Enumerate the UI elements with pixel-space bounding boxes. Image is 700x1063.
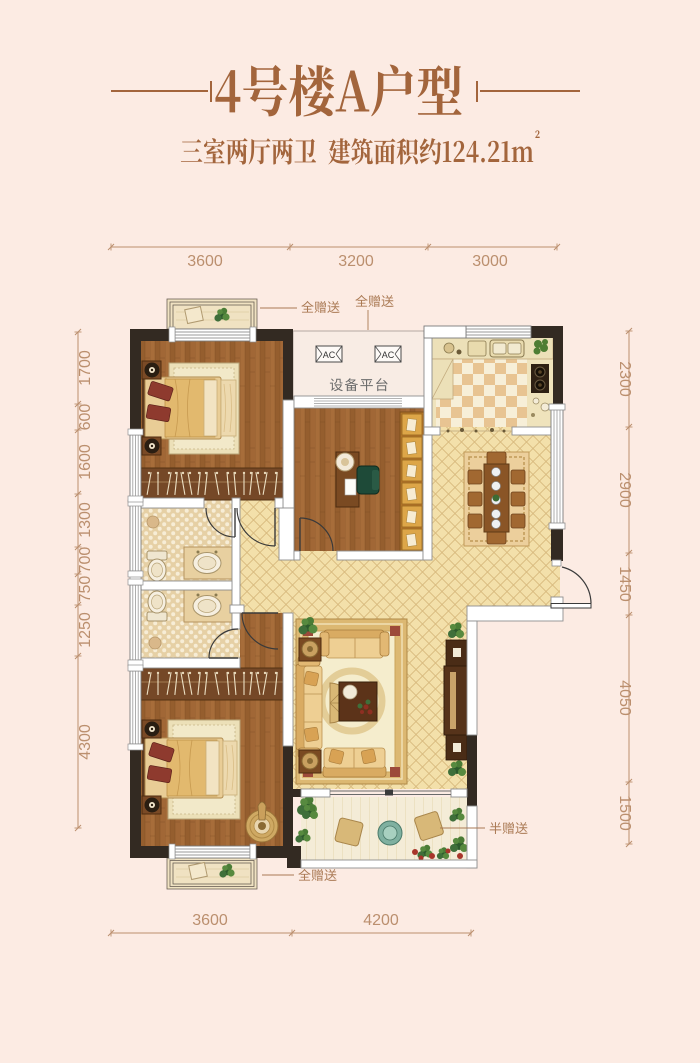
- svg-text:3600: 3600: [192, 912, 228, 929]
- svg-text:2300: 2300: [616, 361, 633, 397]
- svg-text:1500: 1500: [616, 795, 633, 831]
- svg-text:1600: 1600: [77, 444, 94, 480]
- svg-text:4050: 4050: [616, 680, 633, 716]
- svg-text:2900: 2900: [616, 472, 633, 508]
- svg-text:3600: 3600: [187, 253, 223, 270]
- svg-text:1300: 1300: [77, 502, 94, 538]
- svg-text:3200: 3200: [338, 253, 374, 270]
- svg-text:1250: 1250: [77, 612, 94, 648]
- svg-text:1450: 1450: [616, 566, 633, 602]
- svg-text:3000: 3000: [472, 253, 508, 270]
- svg-text:4200: 4200: [363, 912, 399, 929]
- svg-text:AC: AC: [323, 350, 336, 360]
- svg-text:4300: 4300: [77, 724, 94, 760]
- svg-text:1700: 1700: [77, 350, 94, 386]
- svg-text:600: 600: [77, 404, 94, 431]
- svg-text:AC: AC: [382, 350, 395, 360]
- svg-text:700: 700: [77, 547, 94, 574]
- svg-text:750: 750: [77, 576, 94, 603]
